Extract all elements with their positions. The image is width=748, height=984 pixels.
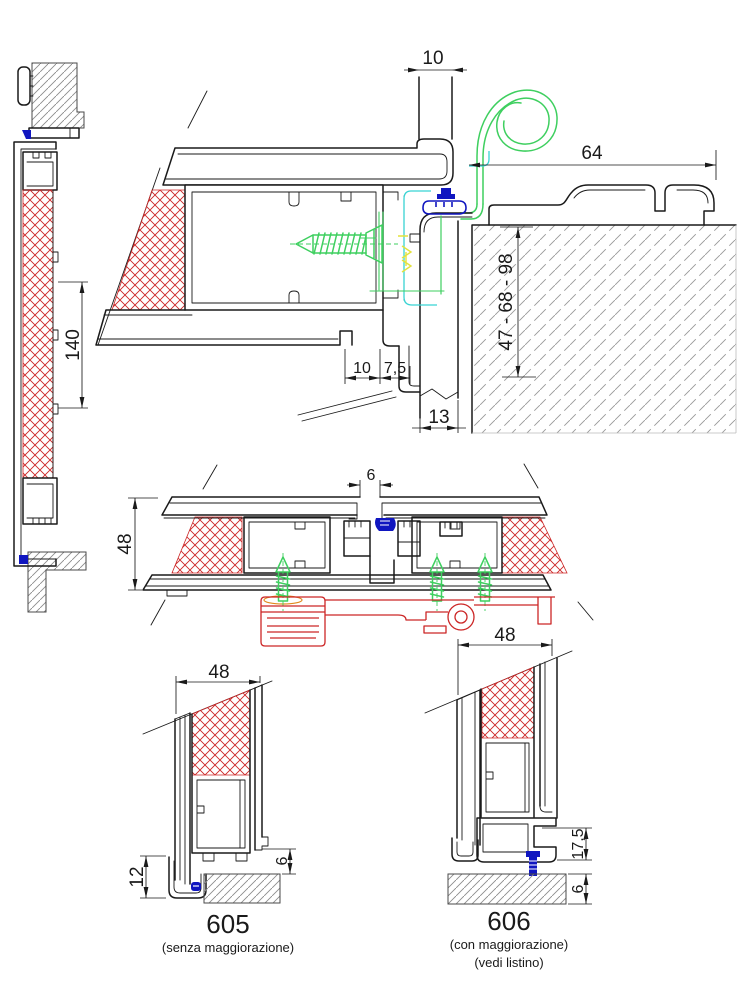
dim-label-48-mid: 48	[115, 533, 136, 554]
dim-label-10: 10	[353, 360, 371, 377]
fly-screen-section-drawing: 140 10	[0, 0, 748, 984]
dim-label-10-top: 10	[422, 48, 443, 69]
variant-note-605: (senza maggiorazione)	[162, 940, 294, 955]
dim-label-wall-range: 47 - 68 - 98	[496, 253, 517, 350]
dim-label-17-5: 17,5	[570, 828, 587, 859]
technical-drawing-page: 140 10	[0, 0, 748, 984]
dim-label-12: 12	[127, 866, 148, 887]
variant-code-605: 605	[206, 909, 249, 939]
dim-label-6-606: 6	[570, 884, 587, 893]
dim-label-64: 64	[581, 143, 603, 164]
dim-label-48-606: 48	[494, 625, 515, 646]
dim-label-7-5: 7,5	[384, 360, 406, 377]
floor-hatch	[448, 874, 566, 904]
variant-note-606-line1: (con maggiorazione)	[450, 937, 569, 952]
wall-hatch-top	[32, 63, 84, 128]
variant-code-606: 606	[487, 906, 530, 936]
dim-label-140: 140	[63, 329, 84, 361]
cap-profile	[18, 67, 33, 105]
floor-hatch	[204, 874, 280, 903]
dim-label-6-605: 6	[274, 856, 291, 865]
dim-label-48-605: 48	[208, 662, 229, 683]
dim-label-6-mid: 6	[367, 467, 376, 484]
dim-label-13: 13	[428, 407, 449, 428]
insulation-strip	[23, 190, 53, 478]
mounting-plate	[29, 128, 79, 138]
seal-bottom	[19, 555, 28, 564]
variant-note-606-line2: (vedi listino)	[474, 955, 543, 970]
